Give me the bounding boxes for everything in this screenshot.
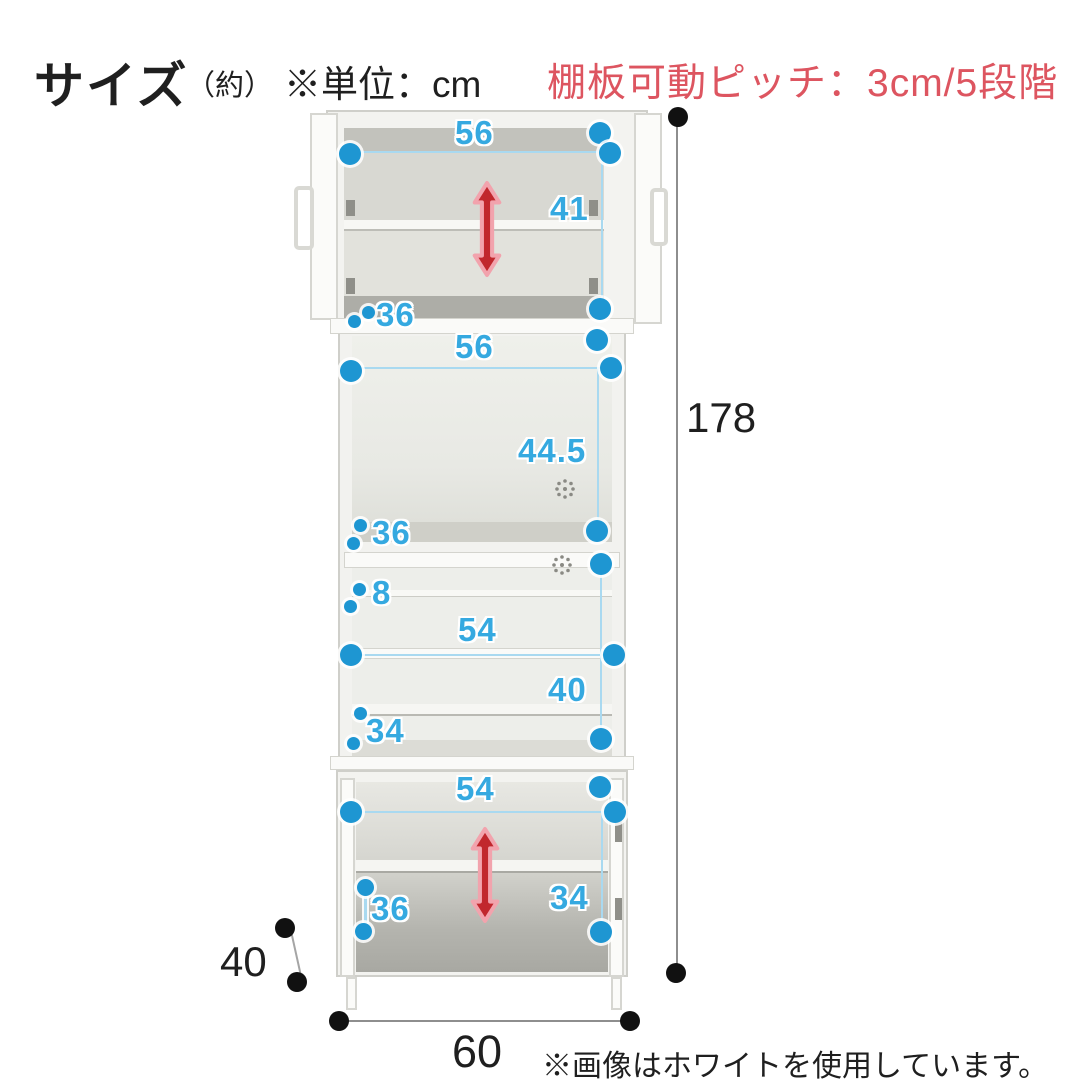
dimension-dot (340, 644, 362, 666)
dimension-endpoint-dot (275, 918, 295, 938)
dimension-dot (362, 306, 375, 319)
dim-line-upper-height (601, 153, 603, 310)
dimension-dot (354, 519, 367, 532)
hinge-icon (346, 278, 355, 294)
dim-overall-height: 178 (686, 394, 756, 442)
dim-lower-height: 34 (550, 879, 589, 917)
dim-shelf-height: 40 (548, 671, 587, 709)
dim-overall-depth: 40 (220, 938, 267, 986)
dim-upper-width: 56 (455, 114, 494, 152)
dim-overall-width: 60 (452, 1026, 502, 1078)
dimension-dot (344, 600, 357, 613)
dim-line-lower-width (351, 811, 615, 813)
page-title: サイズ (34, 46, 189, 118)
hinge-icon (346, 200, 355, 216)
dimension-endpoint-dot (620, 1011, 640, 1031)
dim-middle-height: 44.5 (518, 432, 586, 470)
dimension-dot (589, 122, 611, 144)
dim-lower-width: 54 (456, 770, 495, 808)
hinge-icon (615, 898, 622, 920)
left-door-handle (294, 186, 314, 250)
page-title-note: （約） (186, 62, 273, 104)
unit-label: ※単位：cm (284, 54, 481, 108)
hinge-icon (615, 820, 622, 842)
dim-middle-width: 56 (455, 328, 494, 366)
right-leg (611, 977, 622, 1010)
upper-cabinet-left-door (310, 113, 338, 320)
dim-line-shelf-height (600, 565, 602, 739)
overall-width-line (339, 1020, 630, 1022)
dimension-endpoint-dot (287, 972, 307, 992)
dim-upper-height: 41 (550, 190, 589, 228)
dimension-dot (590, 728, 612, 750)
middle-divider-shelf (344, 552, 620, 568)
dimension-dot (603, 644, 625, 666)
dim-shelf-gap: 8 (372, 574, 391, 612)
dimension-dot (589, 776, 611, 798)
left-leg (346, 977, 357, 1010)
right-door-handle (650, 188, 668, 246)
color-disclaimer: ※画像はホワイトを使用しています。 (542, 1041, 1048, 1080)
dimension-dot (604, 801, 626, 823)
dim-line-middle-width (350, 367, 612, 369)
dimension-endpoint-dot (666, 963, 686, 983)
dimension-dot (586, 329, 608, 351)
dimension-dot (590, 553, 612, 575)
dimension-dot (355, 923, 372, 940)
dimension-endpoint-dot (329, 1011, 349, 1031)
dimension-dot (340, 801, 362, 823)
hinge-icon (589, 278, 598, 294)
dim-line-shelf-width (351, 654, 615, 656)
adjustable-shelf-arrow-icon (470, 180, 504, 278)
dim-lower-depth: 36 (371, 890, 410, 928)
adjustable-shelf-arrow-icon (468, 826, 502, 924)
dimension-dot (347, 537, 360, 550)
dimension-dot (347, 737, 360, 750)
dimension-endpoint-dot (668, 107, 688, 127)
shelf-pitch-note: 棚板可動ピッチ：3cm/5段階 (547, 52, 1058, 108)
vent-hole-icon (551, 474, 579, 504)
dimension-dot (589, 298, 611, 320)
dim-line-middle-height (597, 369, 599, 531)
dim-shelf-depth: 34 (366, 712, 405, 750)
dimension-dot (599, 142, 621, 164)
vent-hole-icon (548, 550, 576, 580)
dimension-dot (590, 921, 612, 943)
dim-middle-depth: 36 (372, 514, 411, 552)
dimension-dot (340, 360, 362, 382)
dimension-dot (586, 520, 608, 542)
dim-shelf-width: 54 (458, 611, 497, 649)
overall-height-line (676, 120, 678, 975)
dimension-dot (600, 357, 622, 379)
size-diagram: サイズ （約） ※単位：cm 棚板可動ピッチ：3cm/5段階 (0, 0, 1080, 1080)
dim-upper-depth: 36 (376, 296, 415, 334)
counter-top (330, 756, 634, 770)
dimension-dot (339, 143, 361, 165)
dimension-dot (348, 315, 361, 328)
hinge-icon (589, 200, 598, 216)
dimension-dot (353, 583, 366, 596)
dim-line-lower-height (601, 813, 603, 932)
